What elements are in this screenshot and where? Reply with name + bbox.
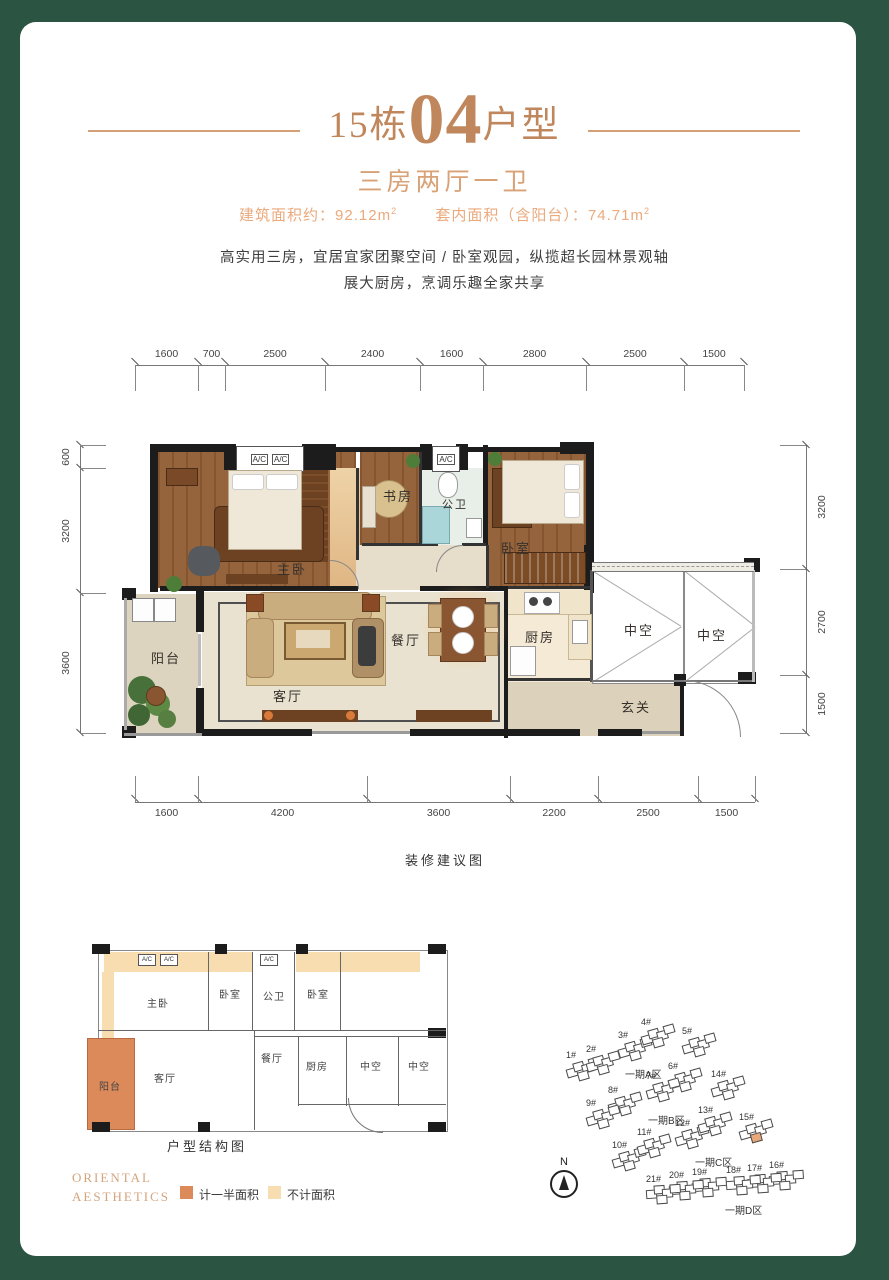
dim-label: 2400 — [349, 348, 397, 360]
room-label-living: 客厅 — [273, 686, 303, 705]
dim-ext — [684, 365, 685, 391]
dim-label: 3200 — [816, 483, 828, 531]
dim-label: 2500 — [251, 348, 299, 360]
structure-wall-block — [296, 944, 308, 954]
sofa-main — [258, 592, 372, 620]
ac-unit-label: A/C — [251, 454, 268, 465]
dim-ext — [198, 776, 199, 802]
cabinet-knob — [264, 711, 273, 720]
structure-nocount-area — [102, 972, 114, 1038]
wall-thin — [508, 586, 592, 589]
structure-label-bath: 公卫 — [263, 988, 285, 1003]
pillow — [266, 474, 298, 490]
wall-segment — [196, 590, 204, 632]
build-area-value: 92.12 — [335, 207, 378, 224]
subtitle-layout: 三房两厅一卫 — [0, 162, 889, 198]
dim-label: 1600 — [428, 348, 476, 360]
structure-label-living: 客厅 — [154, 1070, 176, 1085]
structure-wall-line — [294, 952, 295, 1030]
description-line2: 展大厨房，烹调乐趣全家共享 — [0, 272, 889, 293]
dim-ext — [198, 365, 199, 391]
site-building: 5# — [682, 1026, 716, 1054]
inner-area-label: 套内面积（含阳台）： — [435, 207, 588, 224]
dim-baseline — [135, 802, 755, 803]
tv-cabinet — [262, 710, 358, 722]
entry-door-arc — [684, 680, 741, 737]
cabinet-knob — [346, 711, 355, 720]
dim-baseline — [135, 365, 744, 366]
dim-label: 2500 — [611, 348, 659, 360]
ac-unit-label: A/C — [437, 454, 454, 465]
structure-wall-line — [254, 1030, 255, 1130]
wall-thin — [486, 545, 489, 588]
wall-thin — [462, 543, 486, 546]
dim-label: 3600 — [415, 807, 463, 819]
structure-wall-block — [198, 1122, 210, 1132]
balcony-table — [146, 686, 166, 706]
coffee-table-top — [296, 630, 330, 648]
structure-wall-block — [92, 944, 110, 954]
wall-segment — [508, 729, 580, 736]
plant-icon — [488, 452, 502, 466]
zone-label: 一期C区 — [695, 1154, 732, 1169]
plate — [452, 606, 474, 628]
void-wall-strip — [592, 562, 754, 572]
area-sup2: 2 — [644, 206, 650, 216]
wall-segment — [150, 452, 158, 592]
dresser — [166, 468, 198, 486]
inner-area-value: 74.71 — [588, 207, 631, 224]
dining-chair — [428, 604, 442, 628]
structure-label-kitchen: 厨房 — [306, 1058, 328, 1073]
main-plan-caption: 装修建议图 — [405, 850, 485, 869]
brand-line2: AESTHETICS — [72, 1189, 170, 1205]
dim-ext — [755, 776, 756, 802]
dim-label: 2500 — [624, 807, 672, 819]
wall-segment — [204, 729, 312, 736]
dining-chair — [428, 632, 442, 656]
room-label-foyer: 玄关 — [621, 697, 651, 716]
sofa-cushion — [358, 626, 376, 666]
plate — [452, 632, 474, 654]
zone-label: 一期A区 — [625, 1066, 662, 1081]
ac-mini-label: A/C — [160, 954, 178, 966]
building-glyph — [725, 1174, 760, 1194]
pillow — [232, 474, 264, 490]
room-label-bedroom: 卧室 — [501, 538, 531, 557]
dim-ext — [780, 675, 806, 676]
structure-label-master: 主卧 — [147, 995, 169, 1010]
dim-baseline — [806, 445, 807, 733]
wall-segment — [150, 444, 230, 452]
wall-segment — [598, 729, 642, 736]
dim-ext — [780, 733, 806, 734]
dim-label: 1600 — [143, 348, 191, 360]
site-building: 11# — [637, 1127, 671, 1155]
bath-sink — [466, 518, 482, 538]
legend-half-swatch — [180, 1186, 193, 1199]
dining-chair — [484, 632, 498, 656]
structure-label-bedroom: 卧室 — [219, 986, 241, 1001]
dim-label: 1500 — [703, 807, 751, 819]
dim-ext — [80, 445, 106, 446]
dim-ext — [367, 776, 368, 802]
plant-icon — [128, 704, 150, 726]
title-block: 15栋 — [329, 105, 409, 146]
room-label-dining: 餐厅 — [391, 630, 421, 649]
ac-bay: A/C — [432, 446, 460, 472]
study-desk — [362, 486, 376, 528]
wall-segment — [410, 729, 508, 736]
dim-ext — [780, 569, 806, 570]
wall-thin — [124, 733, 202, 736]
wall-segment — [224, 444, 236, 470]
structure-wall-line — [208, 952, 209, 1030]
structure-wall-block — [92, 1122, 110, 1132]
wall-thin — [124, 598, 127, 730]
dim-label: 2700 — [816, 598, 828, 646]
description-line1: 高实用三房，宜居宜家团聚空间 / 卧室观园，纵揽超长园林景观轴 — [0, 246, 889, 267]
structure-label-bedroom2: 卧室 — [307, 986, 329, 1001]
dim-label: 700 — [188, 348, 236, 360]
room-label-balcony: 阳台 — [151, 648, 181, 667]
structure-plan-caption: 户型结构图 — [167, 1136, 247, 1155]
wall-thin — [312, 731, 410, 734]
wall-segment — [586, 442, 594, 554]
ac-unit-label: A/C — [272, 454, 289, 465]
north-label: N — [550, 1156, 578, 1168]
site-building: 15# — [739, 1112, 773, 1140]
dim-label: 3200 — [60, 507, 72, 555]
wall-thin — [198, 634, 201, 686]
site-building: 18# — [726, 1165, 760, 1193]
sofa-side — [246, 618, 274, 678]
side-table — [362, 594, 380, 612]
dim-label: 2200 — [530, 807, 578, 819]
wall-segment — [302, 444, 336, 470]
dim-ext — [780, 445, 806, 446]
legend-none-label: 不计面积 — [287, 1186, 335, 1203]
dim-ext — [135, 776, 136, 802]
ac-mini-label: A/C — [138, 954, 156, 966]
void-wall-dash — [592, 566, 754, 567]
structure-label-dining: 餐厅 — [261, 1050, 283, 1065]
area-sup: 2 — [391, 206, 397, 216]
burner — [529, 597, 538, 606]
kitchen-sink — [572, 620, 588, 644]
side-table — [246, 594, 264, 612]
console-cabinet — [416, 710, 492, 722]
room-label-void: 中空 — [624, 620, 654, 639]
dim-label: 1600 — [143, 807, 191, 819]
dim-ext — [698, 776, 699, 802]
fridge — [510, 646, 536, 676]
dim-ext — [744, 365, 745, 391]
structure-wall-block — [215, 944, 227, 954]
site-building: 9# — [586, 1098, 620, 1126]
north-arrow: N — [550, 1156, 578, 1198]
dim-ext — [80, 468, 106, 469]
structure-nocount-area — [104, 952, 252, 972]
pillow — [564, 464, 580, 490]
dim-ext — [510, 776, 511, 802]
ac-bay: A/CA/C — [236, 446, 304, 472]
dim-ext — [80, 733, 106, 734]
dim-ext — [135, 365, 136, 391]
structure-label-void: 中空 — [360, 1058, 382, 1073]
wall-segment — [196, 688, 204, 736]
structure-wall-line — [346, 1036, 347, 1106]
burner — [543, 597, 552, 606]
structure-nocount-area — [296, 952, 420, 972]
site-building: 21# — [646, 1174, 680, 1202]
area-unit2: m — [630, 207, 644, 224]
building-glyph — [645, 1183, 680, 1203]
ac-mini-label: A/C — [260, 954, 278, 966]
stage: 15栋04户型 三房两厅一卫 建筑面积约：92.12m2 套内面积（含阳台）：7… — [0, 0, 889, 1280]
wall-thin — [356, 468, 359, 560]
armchair-master — [188, 546, 220, 576]
structure-label-balcony: 阳台 — [99, 1078, 121, 1093]
compass-icon — [550, 1170, 578, 1198]
wall-segment — [160, 586, 358, 591]
dim-baseline — [80, 445, 81, 733]
flyer-page: { "page": { "title": { "block": "15栋", "… — [0, 0, 889, 1280]
area-unit: m — [378, 207, 392, 224]
structure-wall-line — [298, 1036, 299, 1106]
dim-ext — [80, 593, 106, 594]
washer — [154, 598, 176, 622]
zone-label: 一期D区 — [725, 1202, 762, 1217]
wall-thin — [362, 543, 420, 546]
structure-wall-line — [254, 1036, 446, 1037]
legend-half-label: 计一半面积 — [199, 1186, 259, 1203]
dim-label: 1500 — [816, 680, 828, 728]
plant-icon — [158, 710, 176, 728]
wall-thin — [592, 680, 754, 682]
structure-wall-line — [398, 1036, 399, 1106]
structure-wall-line — [340, 952, 341, 1030]
site-building: 2# — [586, 1044, 620, 1072]
structure-wall-block — [428, 1122, 446, 1132]
structure-wall-line — [98, 1030, 446, 1031]
room-label-study: 书房 — [383, 486, 413, 505]
structure-wall-block — [428, 944, 446, 954]
dim-ext — [483, 365, 484, 391]
room-label-master: 主卧 — [277, 559, 307, 578]
title-unit-number: 04 — [409, 79, 483, 159]
toilet — [438, 472, 458, 498]
site-building: 13# — [698, 1105, 732, 1133]
site-building: 14# — [711, 1069, 745, 1097]
dim-label: 2800 — [511, 348, 559, 360]
hallway-floor — [356, 545, 506, 590]
room-label-bath: 公卫 — [442, 496, 468, 512]
dining-chair — [484, 604, 498, 628]
wall-thin — [642, 731, 680, 734]
title-suffix: 户型 — [483, 105, 561, 146]
dim-ext — [586, 365, 587, 391]
area-line: 建筑面积约：92.12m2 套内面积（含阳台）：74.71m2 — [0, 204, 889, 225]
structure-wall-line — [252, 952, 253, 1030]
zone-label: 一期B区 — [648, 1112, 685, 1127]
wall-thin — [508, 678, 592, 681]
wall-segment — [336, 447, 424, 452]
site-building: 4# — [641, 1017, 675, 1045]
room-foyer-floor — [506, 682, 682, 736]
wall-thin — [752, 570, 755, 682]
dim-label: 600 — [60, 433, 72, 481]
build-area-label: 建筑面积约： — [239, 207, 335, 224]
dim-label: 1500 — [690, 348, 738, 360]
page-title: 15栋04户型 — [0, 78, 889, 161]
pillow — [564, 492, 580, 518]
dim-ext — [225, 365, 226, 391]
room-label-kitchen: 厨房 — [525, 627, 555, 646]
room-label-void: 中空 — [697, 625, 727, 644]
washer — [132, 598, 154, 622]
dim-label: 3600 — [60, 639, 72, 687]
dim-label: 4200 — [259, 807, 307, 819]
legend-none-swatch — [268, 1186, 281, 1199]
brand-line1: ORIENTAL — [72, 1170, 152, 1186]
plant-icon — [406, 454, 420, 468]
dim-ext — [598, 776, 599, 802]
dim-ext — [325, 365, 326, 391]
plant-icon — [166, 576, 182, 592]
dim-ext — [420, 365, 421, 391]
structure-label-void2: 中空 — [408, 1058, 430, 1073]
